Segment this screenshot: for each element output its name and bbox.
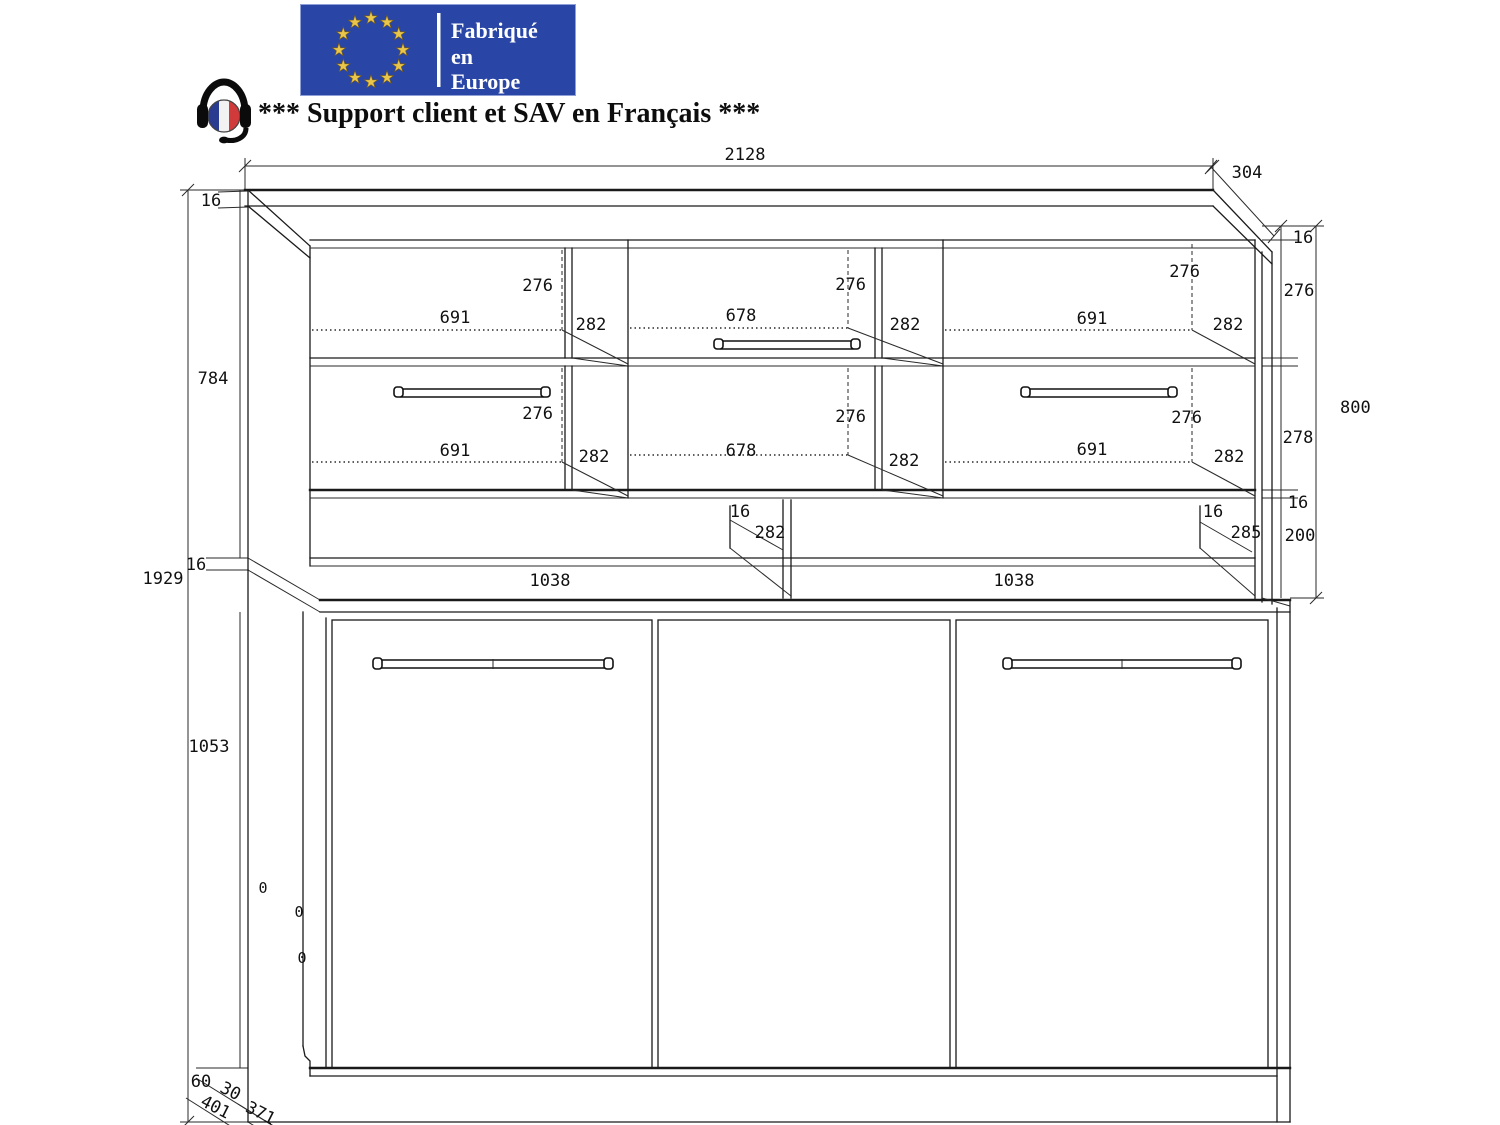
dim-r1-left-w: 691 — [440, 308, 471, 328]
row2-guides — [312, 368, 1255, 496]
dim-left-784: 784 — [198, 369, 229, 389]
dim-r2-mid-w: 678 — [726, 441, 757, 461]
dim-r1-mid-h: 276 — [835, 275, 866, 295]
dim-left-1053: 1053 — [189, 737, 230, 757]
dim-shelf-right-285: 285 — [1231, 523, 1262, 543]
dim-left-total-height: 1929 — [143, 569, 184, 589]
shelf-zone — [730, 500, 1255, 598]
dim-left-lines — [180, 184, 335, 1125]
dim-r2-mid-d: 282 — [889, 451, 920, 471]
dim-r1-mid-w: 678 — [726, 306, 757, 326]
dim-r2-right-w: 691 — [1077, 440, 1108, 460]
dim-shelf-left-1038: 1038 — [530, 571, 571, 591]
dim-right-lines — [1262, 220, 1324, 604]
dim-r2-left-h: 276 — [522, 404, 553, 424]
dim-right-276: 276 — [1284, 281, 1315, 301]
dim-total-width: 2128 — [725, 145, 766, 165]
dim-left-16-bottom: 16 — [186, 555, 206, 575]
base-cabinet-outline — [248, 558, 1290, 1125]
dim-r1-mid-d: 282 — [890, 315, 921, 335]
hutch-top-drawer-handle[interactable] — [714, 339, 860, 349]
dim-top-depth: 304 — [1232, 163, 1263, 183]
dim-left-60: 60 — [191, 1072, 211, 1092]
dim-r1-right-w: 691 — [1077, 309, 1108, 329]
dim-left-16-top: 16 — [201, 191, 221, 211]
dim-r1-left-h: 276 — [522, 276, 553, 296]
dim-r2-right-h: 276 — [1171, 408, 1202, 428]
dim-shelf-center-282: 282 — [755, 523, 786, 543]
zero-mark-1: 0 — [258, 879, 267, 897]
dim-shelf-right-1038: 1038 — [994, 571, 1035, 591]
dim-r1-right-h: 276 — [1169, 262, 1200, 282]
dim-r1-right-d: 282 — [1213, 315, 1244, 335]
door-left[interactable] — [332, 620, 652, 1068]
dim-shelf-center-16: 16 — [730, 502, 750, 522]
dim-right-16-top: 16 — [1293, 228, 1313, 248]
door-right-handle[interactable] — [1003, 658, 1241, 669]
dim-r1-left-d: 282 — [576, 315, 607, 335]
base-cabinet-doors — [332, 620, 1268, 1068]
dim-right-16-mid: 16 — [1288, 493, 1308, 513]
technical-drawing: 2128 304 16 784 1929 16 1053 60 30 401 3… — [0, 0, 1500, 1125]
dim-shelf-right-16: 16 — [1203, 502, 1223, 522]
door-right[interactable] — [956, 620, 1268, 1068]
hutch-left-drawer-handle[interactable] — [394, 387, 550, 397]
dim-right-200: 200 — [1285, 526, 1316, 546]
dim-r2-mid-h: 276 — [835, 407, 866, 427]
zero-mark-3: 0 — [297, 949, 306, 967]
dim-r2-right-d: 282 — [1214, 447, 1245, 467]
dim-r2-left-d: 282 — [579, 447, 610, 467]
dim-right-800: 800 — [1340, 398, 1371, 418]
door-left-handle[interactable] — [373, 658, 613, 669]
door-middle[interactable] — [658, 620, 950, 1068]
hutch-right-drawer-handle[interactable] — [1021, 387, 1177, 397]
dim-r2-left-w: 691 — [440, 441, 471, 461]
dim-right-278: 278 — [1283, 428, 1314, 448]
zero-mark-2: 0 — [294, 903, 303, 921]
